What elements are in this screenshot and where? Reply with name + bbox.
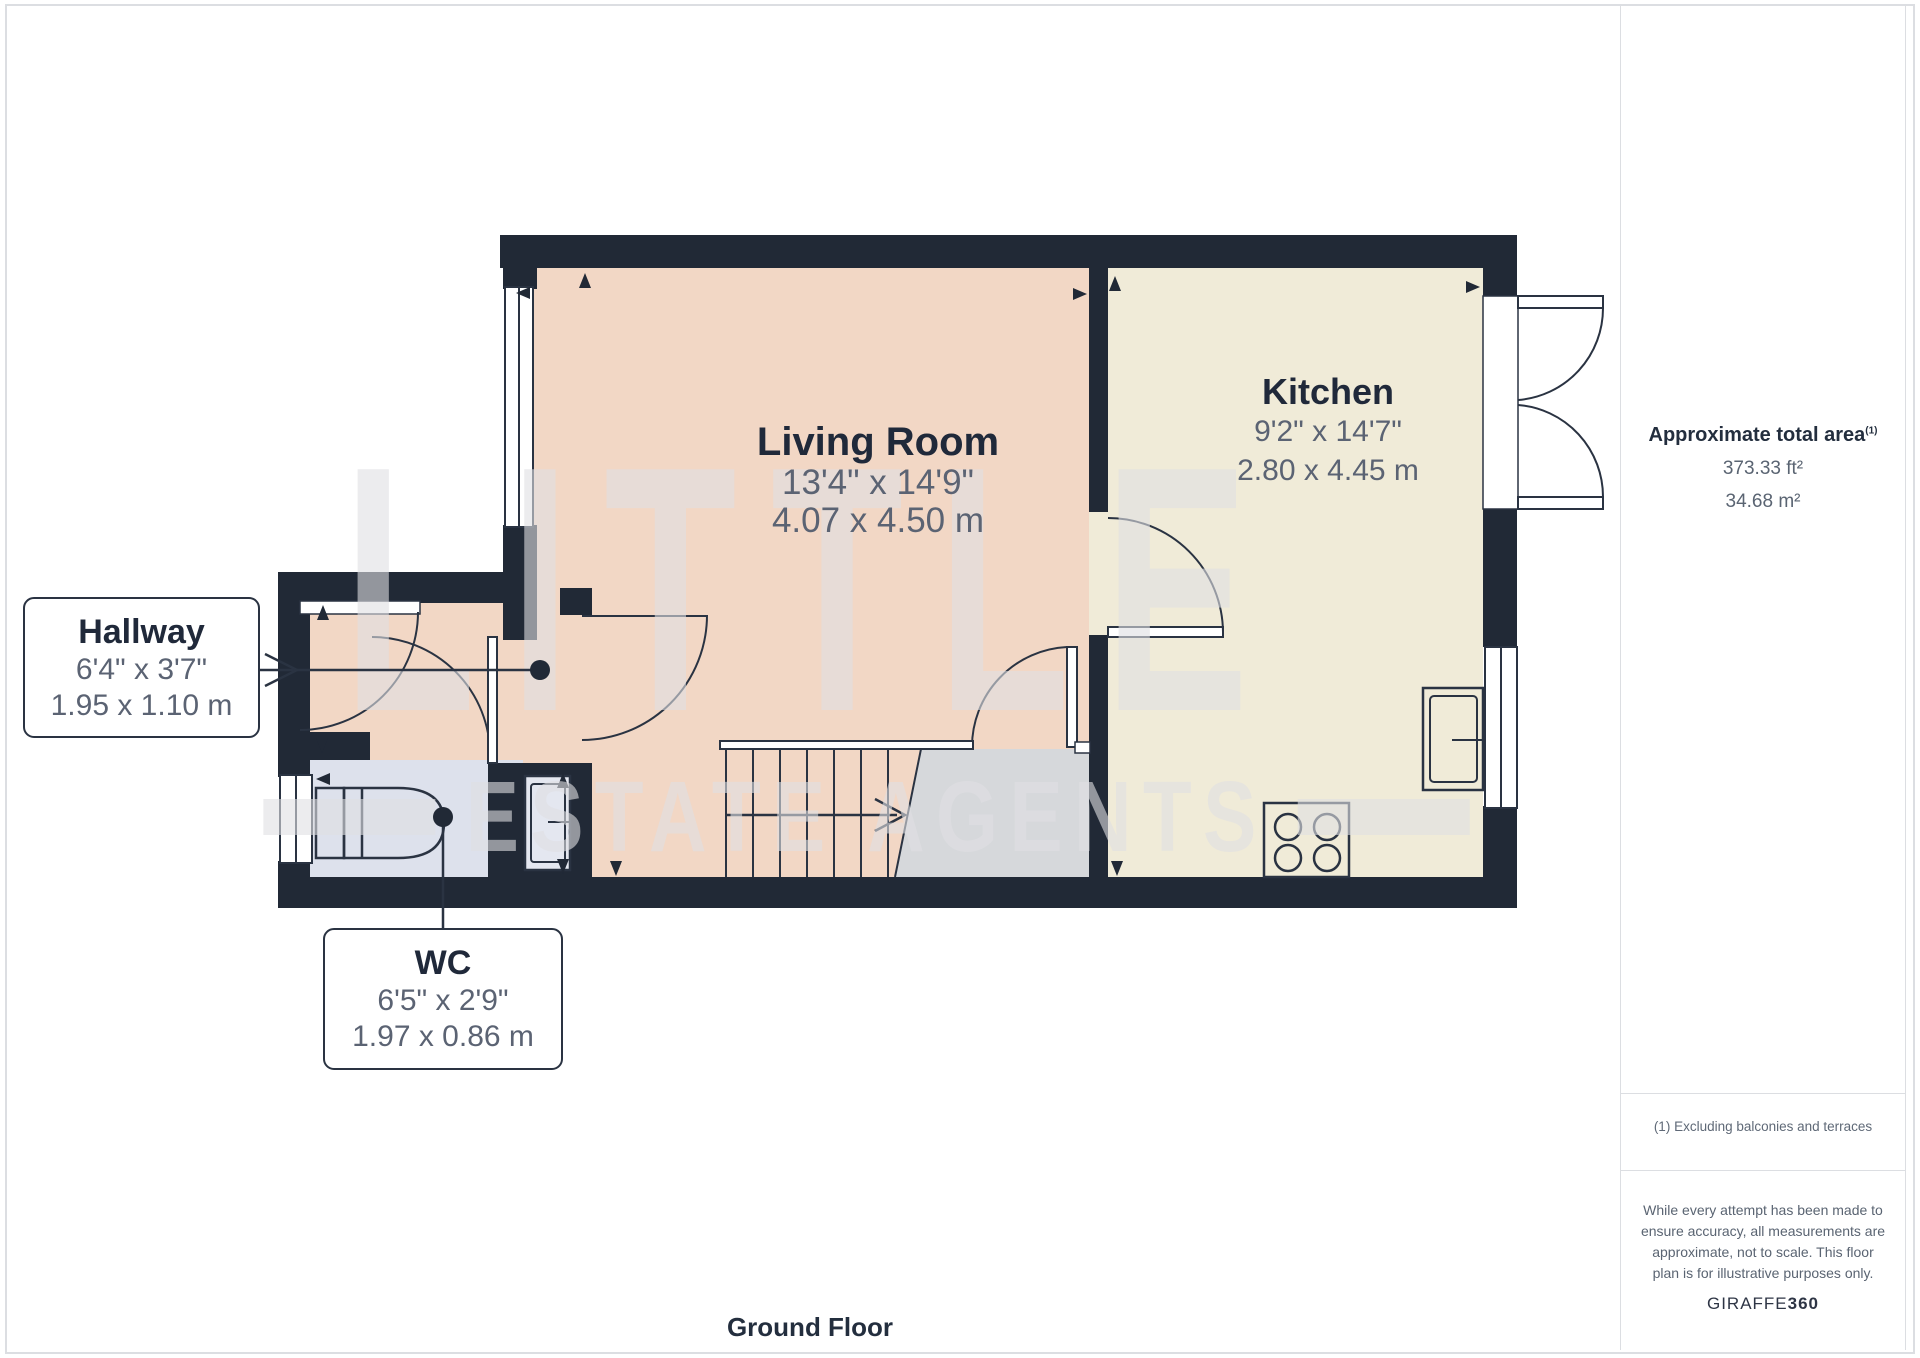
kitchen-label: Kitchen 9'2" x 14'7" 2.80 x 4.45 m (1153, 372, 1503, 490)
total-area-m: 34.68 m² (1621, 491, 1905, 513)
giraffe360-logo-bold: 360 (1788, 1294, 1819, 1313)
wc-metric: 1.97 x 0.86 m (325, 1019, 561, 1055)
hallway-name: Hallway (25, 612, 258, 652)
wc-basin-icon (525, 776, 570, 870)
total-area-ft: 373.33 ft² (1621, 458, 1905, 480)
disclaimer-line: approximate, not to scale. This floor (1621, 1242, 1905, 1263)
sidebar-divider-2 (1621, 1170, 1905, 1171)
hob-icon (1264, 803, 1349, 877)
floorplan-page: { "title": "Ground floor floor plan", "r… (0, 0, 1920, 1358)
wc-name: WC (325, 943, 561, 983)
total-area-superscript: (1) (1865, 425, 1877, 436)
disclaimer-line: plan is for illustrative purposes only. (1621, 1263, 1905, 1284)
hallway-imperial: 6'4" x 3'7" (25, 652, 258, 688)
total-area-heading-text: Approximate total area (1649, 424, 1866, 446)
kitchen-imperial: 9'2" x 14'7" (1153, 412, 1503, 451)
wc-imperial: 6'5" x 2'9" (325, 983, 561, 1019)
info-sidebar: Approximate total area(1) 373.33 ft² 34.… (1620, 6, 1906, 1350)
total-area-block: Approximate total area(1) 373.33 ft² 34.… (1621, 424, 1905, 513)
living-room-label: Living Room 13'4" x 14'9" 4.07 x 4.50 m (703, 420, 1053, 540)
understair-area (895, 749, 1089, 877)
wc-callout: WC 6'5" x 2'9" 1.97 x 0.86 m (323, 928, 563, 1070)
total-area-heading: Approximate total area(1) (1621, 424, 1905, 447)
kitchen-name: Kitchen (1153, 372, 1503, 412)
giraffe360-logo: GIRAFFE360 (1621, 1294, 1905, 1314)
kitchen-metric: 2.80 x 4.45 m (1153, 451, 1503, 490)
living-room-metric: 4.07 x 4.50 m (703, 502, 1053, 540)
floor-title: Ground Floor (0, 1312, 1620, 1343)
area-footnote: (1) Excluding balconies and terraces (1621, 1119, 1905, 1134)
living-room-imperial: 13'4" x 14'9" (703, 464, 1053, 502)
disclaimer-text: While every attempt has been made to ens… (1621, 1200, 1905, 1284)
disclaimer-line: While every attempt has been made to (1621, 1200, 1905, 1221)
sidebar-divider-1 (1621, 1093, 1905, 1094)
living-room-name: Living Room (703, 420, 1053, 464)
disclaimer-line: ensure accuracy, all measurements are (1621, 1221, 1905, 1242)
giraffe360-logo-regular: GIRAFFE (1707, 1294, 1788, 1313)
hallway-metric: 1.95 x 1.10 m (25, 688, 258, 724)
hallway-callout: Hallway 6'4" x 3'7" 1.95 x 1.10 m (23, 597, 260, 738)
